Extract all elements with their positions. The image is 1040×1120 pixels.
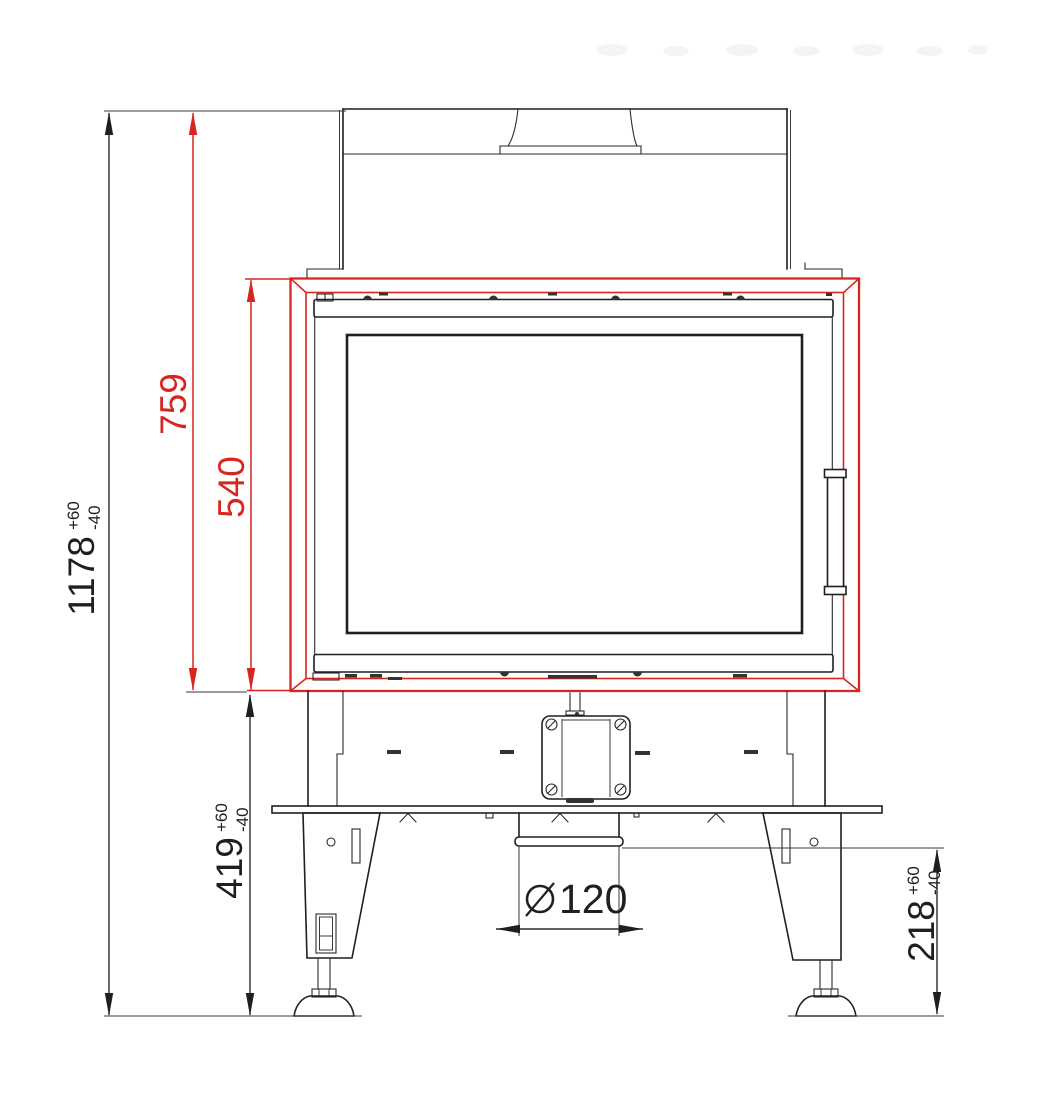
- door-assembly: [313, 293, 833, 681]
- door-glass: [347, 335, 802, 633]
- technical-drawing-canvas: 1178 +60 -40 759 540 419 +60 -40: [0, 0, 1040, 1120]
- dim-base-section-height-tol-plus: +60: [212, 803, 231, 832]
- dim-legs-section-height-value: 218: [901, 900, 942, 962]
- left-leg: [294, 813, 380, 1016]
- dim-total-height-tol-minus: -40: [85, 505, 104, 530]
- dim-door-frame-height: 540: [211, 279, 255, 691]
- flue-pipe-bottom: [515, 813, 623, 846]
- dim-base-section-height-tol-minus: -40: [233, 807, 252, 832]
- dim-body-top-height: 759: [153, 112, 197, 691]
- dim-legs-section-height-tol-plus: +60: [904, 866, 923, 895]
- dim-total-height: 1178 +60 -40: [61, 112, 113, 1016]
- right-foot: [796, 960, 856, 1016]
- mounting-frame: [245, 279, 859, 692]
- left-foot: [294, 958, 354, 1016]
- watermark: [596, 44, 988, 56]
- diameter-symbol: [526, 883, 554, 916]
- frame-top-brackets: [307, 263, 842, 278]
- flue-collar-top: [500, 109, 641, 154]
- dim-base-section-height: 419 +60 -40: [209, 694, 254, 1016]
- upper-chamber: [307, 109, 842, 278]
- dim-door-frame-height-value: 540: [211, 456, 252, 518]
- junction-box-screws: [546, 719, 626, 795]
- dim-total-height-tol-plus: +60: [64, 501, 83, 530]
- dim-total-height-value: 1178: [61, 536, 102, 616]
- dim-legs-section-height-tol-minus: -40: [925, 870, 944, 895]
- dim-legs-section-height: 218 +60 -40: [901, 849, 944, 1015]
- dim-body-top-height-value: 759: [153, 373, 194, 435]
- right-leg: [763, 813, 856, 1016]
- plinth: [308, 691, 825, 806]
- dim-flue-diameter-value: 120: [559, 876, 627, 922]
- dim-base-section-height-value: 419: [209, 837, 250, 899]
- junction-box: [542, 693, 630, 803]
- dim-flue-diameter: 120: [496, 876, 643, 933]
- drawing-page: 1178 +60 -40 759 540 419 +60 -40: [0, 0, 1040, 1120]
- base-plate: [272, 806, 882, 822]
- door-handle: [825, 470, 847, 595]
